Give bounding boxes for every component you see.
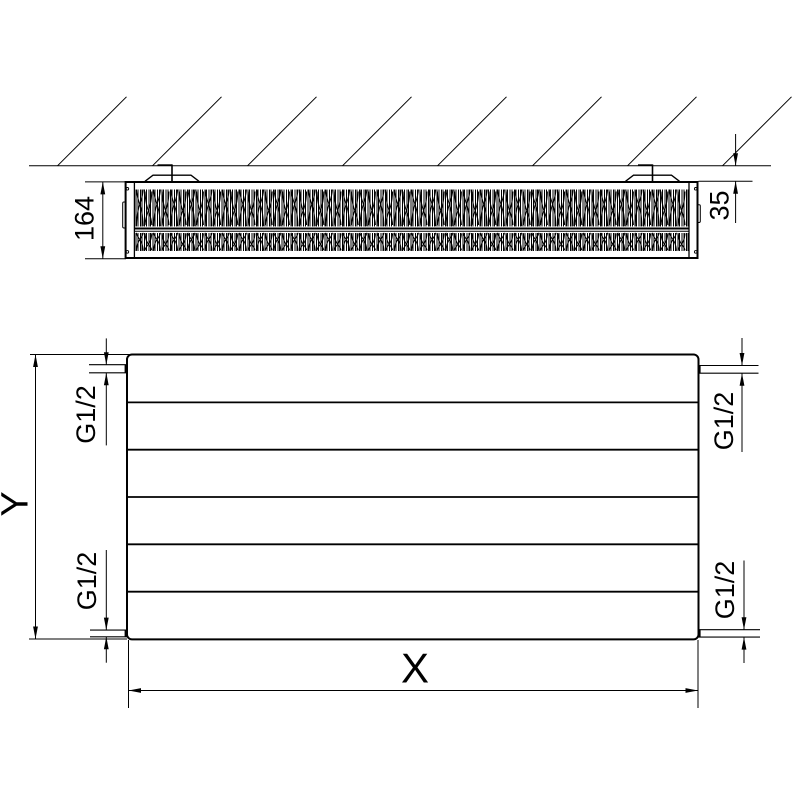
svg-text:G1/2: G1/2 xyxy=(710,561,740,620)
svg-text:35: 35 xyxy=(704,190,734,220)
svg-text:G1/2: G1/2 xyxy=(71,385,101,444)
svg-text:Y: Y xyxy=(0,491,37,516)
svg-text:G1/2: G1/2 xyxy=(72,552,102,611)
svg-text:G1/2: G1/2 xyxy=(709,392,739,451)
svg-text:X: X xyxy=(401,645,429,692)
svg-text:164: 164 xyxy=(70,196,100,241)
